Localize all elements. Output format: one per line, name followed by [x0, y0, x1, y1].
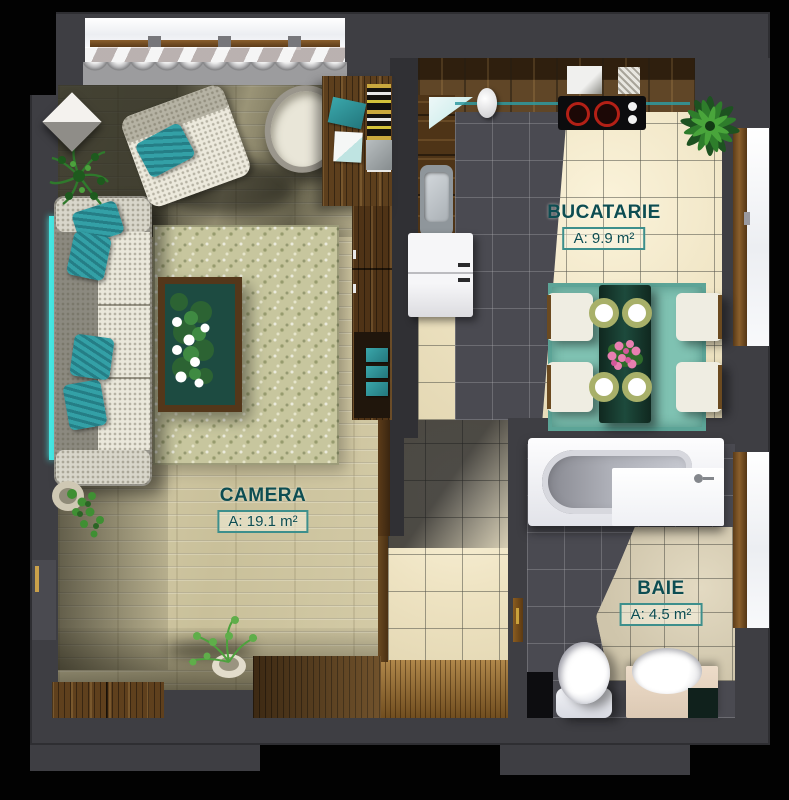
chair-arm-wood [547, 295, 551, 339]
bathroom-door-handle [516, 608, 519, 624]
wall-bath-left [508, 418, 527, 718]
wardrobe-seam [352, 268, 392, 270]
plate [622, 298, 652, 328]
room-name-bucatarie: BUCATARIE [547, 202, 661, 224]
dining-chair [547, 293, 593, 341]
room-area-baie: A: 4.5 m² [620, 603, 703, 626]
void-top-left [0, 0, 56, 95]
shelf-decor-teal [366, 382, 388, 396]
palm-plant [678, 88, 742, 164]
sofa-pillow [69, 333, 114, 380]
wardrobe-edge-lower [378, 420, 390, 536]
floor-plan-scene: BUCATARIE A: 9.9 m² CAMERA A: 19.1 m² BA… [0, 0, 789, 800]
room-label-baie: BAIE A: 4.5 m² [620, 578, 703, 626]
vanity-dark-box [688, 688, 718, 718]
sideboard-right [253, 656, 381, 718]
room-label-bucatarie: BUCATARIE A: 9.9 m² [547, 202, 661, 250]
chair-arm-wood [718, 365, 722, 409]
living-window-sill [90, 40, 340, 47]
void-right [770, 0, 789, 800]
dining-chair [676, 293, 722, 341]
window-handle [744, 212, 750, 225]
sideboard-seam [106, 682, 108, 718]
room-name-baie: BAIE [637, 578, 684, 600]
wardrobe-handle [353, 284, 356, 293]
kettle [477, 88, 497, 118]
toilet-bowl [558, 642, 610, 704]
kitchen-window-glass [747, 128, 769, 346]
burner [594, 101, 620, 127]
bathtub-spout [703, 477, 714, 480]
outer-wall-step-bottom-right [500, 745, 690, 775]
cooktop-knob [628, 115, 637, 124]
fridge-handle [458, 278, 470, 282]
ivy-plant-left [46, 474, 120, 550]
door-leaf-living [378, 536, 388, 662]
cooktop-knob [628, 102, 637, 111]
plate [622, 372, 652, 402]
dining-chair [676, 362, 722, 412]
dining-chair [547, 362, 593, 412]
fridge-seam [408, 272, 473, 274]
fridge [408, 233, 473, 317]
sofa-pillow [62, 379, 107, 431]
living-window-inner-light [85, 47, 345, 63]
outer-wall-step-bottom-left [30, 745, 260, 771]
coffee-table-flowers [165, 284, 221, 391]
burner [566, 102, 590, 126]
coffee-table [158, 277, 242, 412]
counter-item-marble [618, 67, 640, 94]
left-door-handle [35, 566, 39, 592]
room-label-camera: CAMERA A: 19.1 m² [217, 485, 308, 533]
counter-item-white [567, 66, 602, 94]
kitchen-sink-basin [424, 172, 449, 222]
notepad-white [333, 131, 363, 162]
room-area-camera: A: 19.1 m² [217, 510, 308, 533]
void-left [0, 95, 30, 800]
room-area-bucatarie: A: 9.9 m² [563, 227, 646, 250]
sideboard-left [52, 682, 164, 718]
bathroom-window-frame [733, 452, 747, 628]
monitor-box [366, 140, 392, 170]
wardrobe-handle [353, 250, 356, 259]
shelf-decor-teal [366, 366, 388, 378]
fridge-handle [458, 263, 470, 267]
chair-arm-wood [547, 365, 551, 409]
plate [589, 372, 619, 402]
bath-niche [527, 672, 553, 718]
bathroom-window-glass [747, 452, 769, 628]
plate [589, 298, 619, 328]
dining-bouquet [600, 334, 650, 376]
shelf-decor-teal [366, 348, 388, 362]
bathtub-faucet [694, 474, 703, 483]
entry-floor-wood [380, 660, 508, 718]
room-name-camera: CAMERA [220, 485, 306, 507]
fern-plant-top-left [48, 140, 110, 212]
entry-plant [183, 610, 265, 680]
chair-arm-wood [718, 295, 722, 339]
void-top [0, 0, 789, 12]
sofa-cushion-seam [98, 304, 150, 306]
